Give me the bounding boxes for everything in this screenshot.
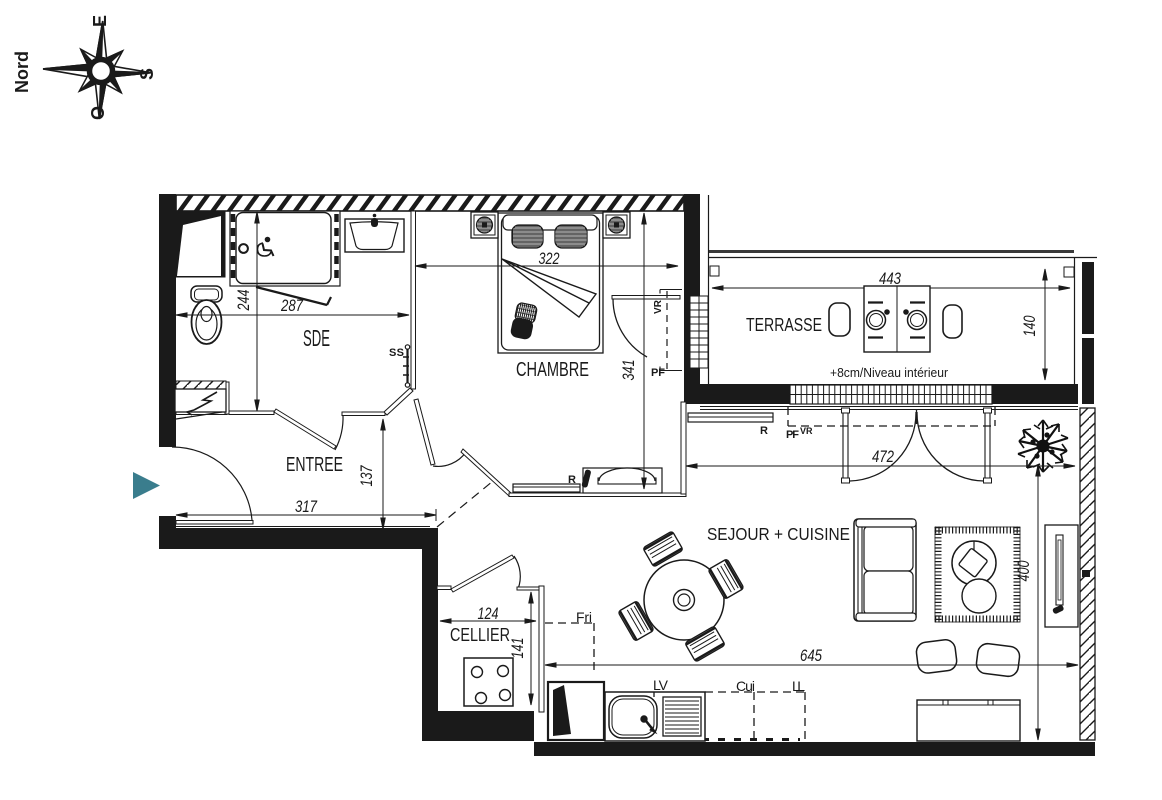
svg-text:322: 322	[539, 249, 560, 268]
svg-text:472: 472	[872, 447, 894, 466]
svg-text:400: 400	[1014, 560, 1033, 581]
svg-text:S: S	[137, 68, 157, 80]
svg-text:TERRASSE: TERRASSE	[746, 315, 822, 335]
svg-text:287: 287	[280, 296, 303, 315]
svg-text:E: E	[90, 15, 110, 27]
svg-text:VR: VR	[653, 299, 664, 314]
svg-text:Cui: Cui	[736, 678, 755, 694]
svg-text:141: 141	[508, 638, 527, 659]
svg-text:PF: PF	[651, 367, 665, 379]
svg-text:SEJOUR + CUISINE: SEJOUR + CUISINE	[707, 524, 850, 544]
svg-text:VR: VR	[800, 426, 813, 436]
svg-text:ENTREE: ENTREE	[286, 454, 343, 476]
svg-text:317: 317	[295, 497, 317, 516]
svg-text:443: 443	[879, 269, 901, 288]
svg-text:137: 137	[357, 465, 376, 486]
svg-text:LL: LL	[792, 678, 805, 694]
svg-text:O: O	[88, 106, 108, 120]
svg-text:SS: SS	[389, 347, 404, 359]
svg-text:244: 244	[234, 290, 253, 312]
svg-text:R: R	[760, 425, 768, 437]
svg-text:Nord: Nord	[12, 51, 32, 93]
svg-text:CHAMBRE: CHAMBRE	[516, 359, 589, 381]
svg-text:SDE: SDE	[303, 325, 330, 351]
svg-text:124: 124	[478, 604, 499, 623]
svg-text:645: 645	[800, 646, 822, 665]
svg-text:140: 140	[1020, 315, 1039, 336]
svg-text:341: 341	[619, 360, 638, 381]
svg-text:+8cm/Niveau intérieur: +8cm/Niveau intérieur	[830, 365, 949, 380]
svg-text:CELLIER: CELLIER	[450, 625, 510, 645]
svg-text:LV: LV	[653, 677, 669, 693]
svg-text:R: R	[568, 474, 576, 486]
svg-text:PF: PF	[786, 429, 799, 441]
svg-text:Fri: Fri	[576, 609, 592, 625]
